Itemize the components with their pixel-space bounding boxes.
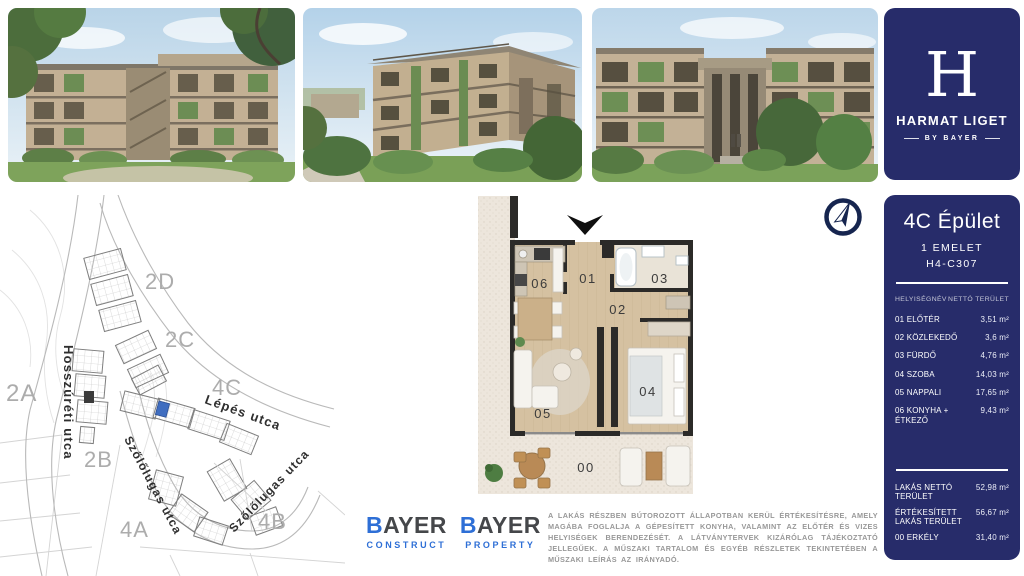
brand-title: HARMAT LIGET xyxy=(896,113,1008,128)
brand-subtitle-row: BY BAYER xyxy=(904,135,1001,142)
panel-divider-bottom xyxy=(896,469,1008,471)
entrance-arrow-icon xyxy=(567,215,603,235)
room-row-name: 06 KONYHA + ÉTKEZŐ xyxy=(895,406,976,424)
total-row: LAKÁS NETTÓ TERÜLET 52,98 m² xyxy=(895,483,1009,501)
street-label-hosszureti: Hosszúréti utca xyxy=(61,345,76,460)
unit-building-title: 4C Épület xyxy=(895,210,1009,234)
room-row-area: 17,65 m² xyxy=(976,388,1009,397)
developer-logos: BAYER CONSTRUCT BAYER PROPERTY xyxy=(366,514,541,550)
floor-plan: 01 02 03 04 05 06 00 xyxy=(470,190,720,502)
brand-subtitle: BY BAYER xyxy=(925,135,980,142)
site-map: 2D 2C 2A 4C 2B 4A 4B Hosszúréti utca Lép… xyxy=(0,195,345,576)
total-row-area: 52,98 m² xyxy=(976,483,1009,492)
area-label-2d: 2D xyxy=(145,269,175,294)
render-photo-corner xyxy=(303,8,582,182)
bayer-property-division: PROPERTY xyxy=(465,540,535,550)
area-label-4b: 4B xyxy=(258,509,287,534)
disclaimer-text: A LAKÁS RÉSZBEN BÚTOROZOTT ÁLLAPOTBAN KE… xyxy=(548,511,878,566)
total-row: 00 ERKÉLY 31,40 m² xyxy=(895,533,1009,542)
column-header-area: NETTÓ TERÜLET xyxy=(948,296,1009,303)
area-label-2a: 2A xyxy=(6,380,37,407)
room-label-03: 03 xyxy=(651,271,668,286)
bayer-construct-division: CONSTRUCT xyxy=(367,540,447,550)
column-header-name: HELYISÉGNÉV xyxy=(895,296,947,303)
room-label-02: 02 xyxy=(609,302,626,317)
stair-core-unit xyxy=(84,391,94,403)
render-photo-facade xyxy=(592,8,878,182)
unit-code-label: H4-C307 xyxy=(895,258,1009,270)
bayer-property-wordmark: BAYER xyxy=(460,514,541,537)
area-label-2b: 2B xyxy=(84,447,113,472)
panel-divider-top xyxy=(896,282,1008,284)
room-label-00: 00 xyxy=(577,460,594,475)
subtitle-dash-left xyxy=(904,138,919,139)
room-row-area: 4,76 m² xyxy=(980,351,1009,360)
room-row: 03 FÜRDŐ 4,76 m² xyxy=(895,351,1009,360)
unit-info-panel: 4C Épület 1 EMELET H4-C307 HELYISÉGNÉV N… xyxy=(884,195,1020,560)
room-row-name: 01 ELŐTÉR xyxy=(895,315,940,324)
room-row-name: 02 KÖZLEKEDŐ xyxy=(895,333,957,342)
room-row: 05 NAPPALI 17,65 m² xyxy=(895,388,1009,397)
room-row-area: 3,6 m² xyxy=(985,333,1009,342)
total-row: ÉRTÉKESÍTETT LAKÁS TERÜLET 56,67 m² xyxy=(895,508,1009,526)
total-row-name: ÉRTÉKESÍTETT LAKÁS TERÜLET xyxy=(895,508,972,526)
brand-logo-card: H HARMAT LIGET BY BAYER xyxy=(884,8,1020,180)
room-row: 01 ELŐTÉR 3,51 m² xyxy=(895,315,1009,324)
room-label-05: 05 xyxy=(534,406,551,421)
room-label-06: 06 xyxy=(531,276,548,291)
room-row-area: 9,43 m² xyxy=(980,406,1009,415)
render-photo-courtyard xyxy=(8,8,295,182)
area-label-2c: 2C xyxy=(165,327,195,352)
room-label-04: 04 xyxy=(639,384,656,399)
area-label-4a: 4A xyxy=(120,517,149,542)
brochure-page: H HARMAT LIGET BY BAYER xyxy=(0,0,1024,576)
total-row-area: 31,40 m² xyxy=(976,533,1009,542)
total-row-name: LAKÁS NETTÓ TERÜLET xyxy=(895,483,972,501)
bayer-construct-logo: BAYER CONSTRUCT xyxy=(366,514,447,550)
total-row-area: 56,67 m² xyxy=(976,508,1009,517)
corner-render-illustration xyxy=(303,8,582,182)
subtitle-dash-right xyxy=(985,138,1000,139)
room-row-name: 03 FÜRDŐ xyxy=(895,351,936,360)
room-row-name: 05 NAPPALI xyxy=(895,388,941,397)
total-row-name: 00 ERKÉLY xyxy=(895,533,939,542)
bayer-property-logo: BAYER PROPERTY xyxy=(460,514,541,550)
room-row-name: 04 SZOBA xyxy=(895,370,935,379)
unit-floor-label: 1 EMELET xyxy=(895,242,1009,254)
panel-spacer xyxy=(895,429,1009,469)
room-row-area: 14,03 m² xyxy=(976,370,1009,379)
table-column-headers: HELYISÉGNÉV NETTÓ TERÜLET xyxy=(895,296,1009,303)
bayer-construct-wordmark: BAYER xyxy=(366,514,447,537)
compass-icon xyxy=(820,194,866,240)
room-row: 06 KONYHA + ÉTKEZŐ 9,43 m² xyxy=(895,406,1009,424)
courtyard-render-illustration xyxy=(8,8,295,182)
room-row: 02 KÖZLEKEDŐ 3,6 m² xyxy=(895,333,1009,342)
brand-monogram: H xyxy=(925,46,979,105)
room-row-area: 3,51 m² xyxy=(980,315,1009,324)
room-row: 04 SZOBA 14,03 m² xyxy=(895,370,1009,379)
facade-render-illustration xyxy=(592,8,878,182)
room-label-01: 01 xyxy=(579,271,596,286)
